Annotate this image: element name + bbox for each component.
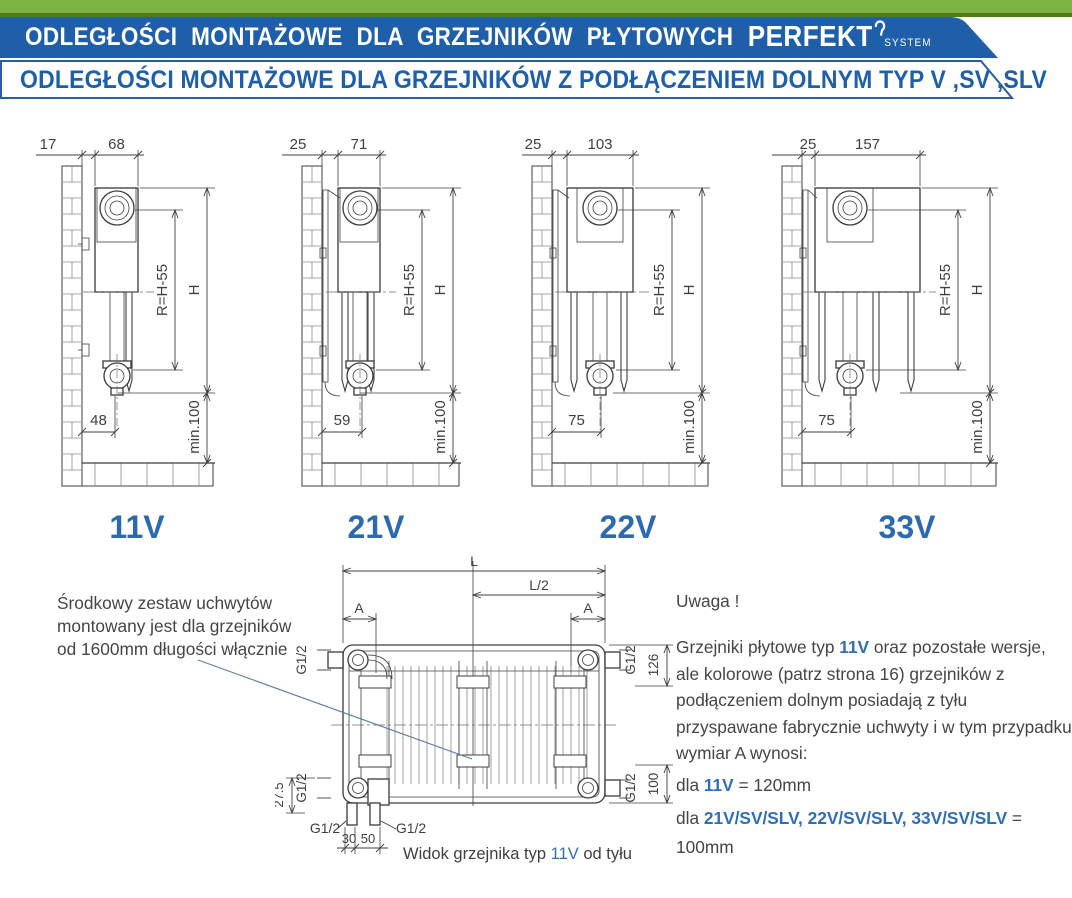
dim-bottom-offset: 48: [90, 412, 107, 429]
type-label: 33V: [879, 509, 937, 545]
dim-depth: 103: [587, 136, 612, 153]
dim-bottom-offset: 59: [334, 412, 351, 429]
type-label: 21V: [348, 509, 406, 545]
dim-radius: R=H-55: [651, 264, 668, 316]
dim-wall-offset: 25: [800, 136, 817, 153]
page-title: ODLEGŁOŚCI MONTAŻOWE DLA GRZEJNIKÓW PŁYT…: [25, 23, 733, 52]
radiator-side-view: 25103R=H-55Hmin.1007522V: [518, 130, 758, 555]
brand-name: PERFEKT: [748, 23, 873, 52]
case-11v: dla 11V = 120mm: [676, 771, 1072, 800]
text-segment-highlight: 11V: [704, 775, 734, 795]
dim-depth: 157: [855, 136, 880, 153]
thread-label: G1/2: [396, 820, 427, 836]
warning-paragraph: Grzejniki płytowe typ 11V oraz pozostałe…: [676, 634, 1072, 767]
brand-hook-icon: [874, 19, 887, 44]
diagram-21v: 2571R=H-55Hmin.1005921V: [278, 130, 518, 560]
dim-wall-offset: 25: [525, 136, 542, 153]
dim-wall-offset: 17: [40, 136, 57, 153]
catalog-page: ODLEGŁOŚCI MONTAŻOWE DLA GRZEJNIKÓW PŁYT…: [0, 0, 1072, 898]
diagram-33v: 25157R=H-55Hmin.1007533V: [768, 130, 1068, 560]
dim-height: H: [969, 285, 986, 296]
text-segment: dla: [676, 775, 704, 795]
dim-height: H: [186, 285, 203, 296]
brand-suffix: SYSTEM: [884, 37, 931, 49]
left-note: Środkowy zestaw uchwytów montowany jest …: [57, 592, 313, 661]
type-label: 22V: [600, 509, 658, 545]
dim-depth: 71: [351, 136, 368, 153]
dim-radius: R=H-55: [937, 264, 954, 316]
diagram-22v: 25103R=H-55Hmin.1007522V: [518, 130, 758, 560]
dim-bottom-offset: 75: [818, 412, 835, 429]
warning-note: Uwaga ! Grzejniki płytowe typ 11V oraz p…: [676, 590, 1072, 862]
dim-27-5: 27.5: [275, 782, 286, 807]
text-segment: Grzejniki płytowe typ: [676, 637, 839, 657]
thread-label: G1/2: [310, 820, 341, 836]
dim-height: H: [681, 285, 698, 296]
text-segment-highlight: 21V/SV/SLV, 22V/SV/SLV, 33V/SV/SLV: [704, 808, 1007, 828]
rear-view-caption: Widok grzejnika typ 11V od tyłu: [403, 845, 632, 863]
dim-height: H: [432, 285, 449, 296]
dim-radius: R=H-55: [154, 264, 171, 316]
brand-logo: PERFEKT SYSTEM: [748, 23, 932, 52]
thread-label: G1/2: [623, 773, 638, 802]
dim-bracket-left: A: [354, 600, 364, 616]
dim-bottom-offset: 75: [568, 412, 585, 429]
radiator-side-view: 2571R=H-55Hmin.1005921V: [278, 130, 518, 555]
type-label: 11V: [109, 509, 165, 545]
dim-length: L: [470, 553, 478, 569]
case-other: dla 21V/SV/SLV, 22V/SV/SLV, 33V/SV/SLV =…: [676, 804, 1072, 862]
dim-50: 50: [361, 831, 375, 846]
dim-radius: R=H-55: [401, 264, 418, 316]
dim-bracket-right: A: [583, 600, 593, 616]
dim-floor-clearance: min.100: [681, 400, 698, 453]
page-header: ODLEGŁOŚCI MONTAŻOWE DLA GRZEJNIKÓW PŁYT…: [25, 17, 1032, 58]
dim-half-length: L/2: [529, 577, 549, 593]
radiator-side-view: 25157R=H-55Hmin.1007533V: [768, 130, 1068, 555]
dim-floor-clearance: min.100: [432, 400, 449, 453]
sub-header: ODLEGŁOŚCI MONTAŻOWE DLA GRZEJNIKÓW Z PO…: [20, 60, 1072, 100]
text-segment: dla: [676, 808, 704, 828]
thread-label: G1/2: [623, 645, 638, 674]
dim-floor-clearance: min.100: [186, 400, 203, 453]
warning-title: Uwaga !: [676, 590, 1072, 612]
diagram-11v: 1768R=H-55Hmin.1004811V: [18, 130, 258, 560]
text-segment: = 120mm: [734, 775, 811, 795]
dim-floor-clearance: min.100: [969, 400, 986, 453]
radiator-side-view: 1768R=H-55Hmin.1004811V: [18, 130, 258, 555]
page-subtitle: ODLEGŁOŚCI MONTAŻOWE DLA GRZEJNIKÓW Z PO…: [20, 66, 1047, 95]
top-green-bar: [0, 0, 1072, 13]
dim-30: 30: [342, 831, 356, 846]
text-segment-highlight: 11V: [839, 637, 869, 657]
dim-100: 100: [646, 773, 661, 796]
dim-wall-offset: 25: [290, 136, 307, 153]
dim-126: 126: [646, 654, 661, 677]
dim-depth: 68: [108, 136, 125, 153]
rear-view-diagram: L L/2 A A G1/2 G1/2 G1/2: [275, 553, 675, 898]
